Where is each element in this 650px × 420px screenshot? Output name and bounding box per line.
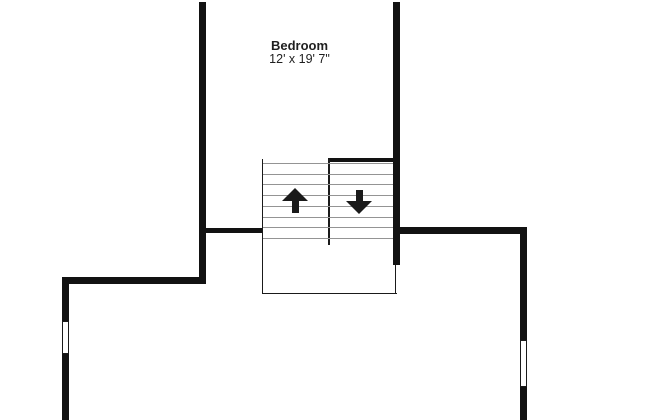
- stair-tread-line: [263, 206, 393, 207]
- bedroom-left-wall: [199, 2, 206, 284]
- stair-tread-line: [263, 163, 393, 164]
- right-exterior-wall: [520, 227, 527, 420]
- stair-railing-left: [203, 228, 262, 233]
- stair-tread-line: [263, 174, 393, 175]
- stair-left-line: [262, 159, 263, 293]
- room-name: Bedroom: [206, 39, 393, 52]
- bedroom-label: Bedroom 12' x 19' 7": [206, 39, 393, 66]
- arrow-up-stem: [292, 200, 299, 213]
- stair-bottom-line: [262, 293, 397, 294]
- stair-tread-line: [263, 238, 393, 239]
- right-window: [520, 340, 527, 387]
- stair-railing-right: [328, 158, 393, 162]
- stair-tread-line: [263, 217, 393, 218]
- stair-tread-line: [263, 227, 393, 228]
- stair-right-line: [395, 265, 396, 293]
- stair-tread-line: [263, 184, 393, 185]
- left-window: [62, 321, 69, 354]
- floorplan-canvas: Bedroom 12' x 19' 7": [0, 0, 650, 420]
- lower-left-room-top-wall: [62, 277, 206, 284]
- arrow-down-head: [346, 201, 372, 214]
- lower-right-room-top-wall: [393, 227, 527, 234]
- room-dimensions: 12' x 19' 7": [206, 53, 393, 66]
- bedroom-right-wall: [393, 2, 400, 265]
- stair-divider: [328, 158, 330, 245]
